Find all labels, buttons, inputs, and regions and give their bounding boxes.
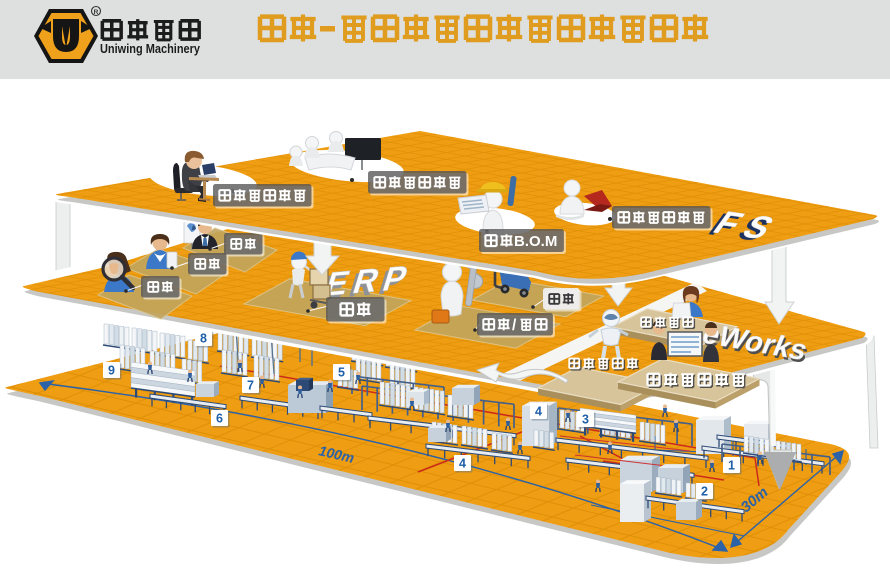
svg-text:8: 8 xyxy=(200,332,207,346)
svg-text:1: 1 xyxy=(728,459,735,473)
svg-text:5: 5 xyxy=(338,366,345,380)
svg-text:Uniwing Machinery: Uniwing Machinery xyxy=(100,42,200,56)
svg-text:9: 9 xyxy=(108,364,115,378)
svg-text:B.O.M: B.O.M xyxy=(514,233,557,250)
svg-text:4: 4 xyxy=(459,457,466,471)
svg-text:6: 6 xyxy=(216,412,223,426)
svg-text:2: 2 xyxy=(701,485,708,499)
svg-text:4: 4 xyxy=(535,405,542,419)
svg-text:/: / xyxy=(512,317,517,334)
svg-text:R: R xyxy=(94,9,99,16)
svg-text:3: 3 xyxy=(582,413,589,427)
svg-text:7: 7 xyxy=(247,379,254,393)
